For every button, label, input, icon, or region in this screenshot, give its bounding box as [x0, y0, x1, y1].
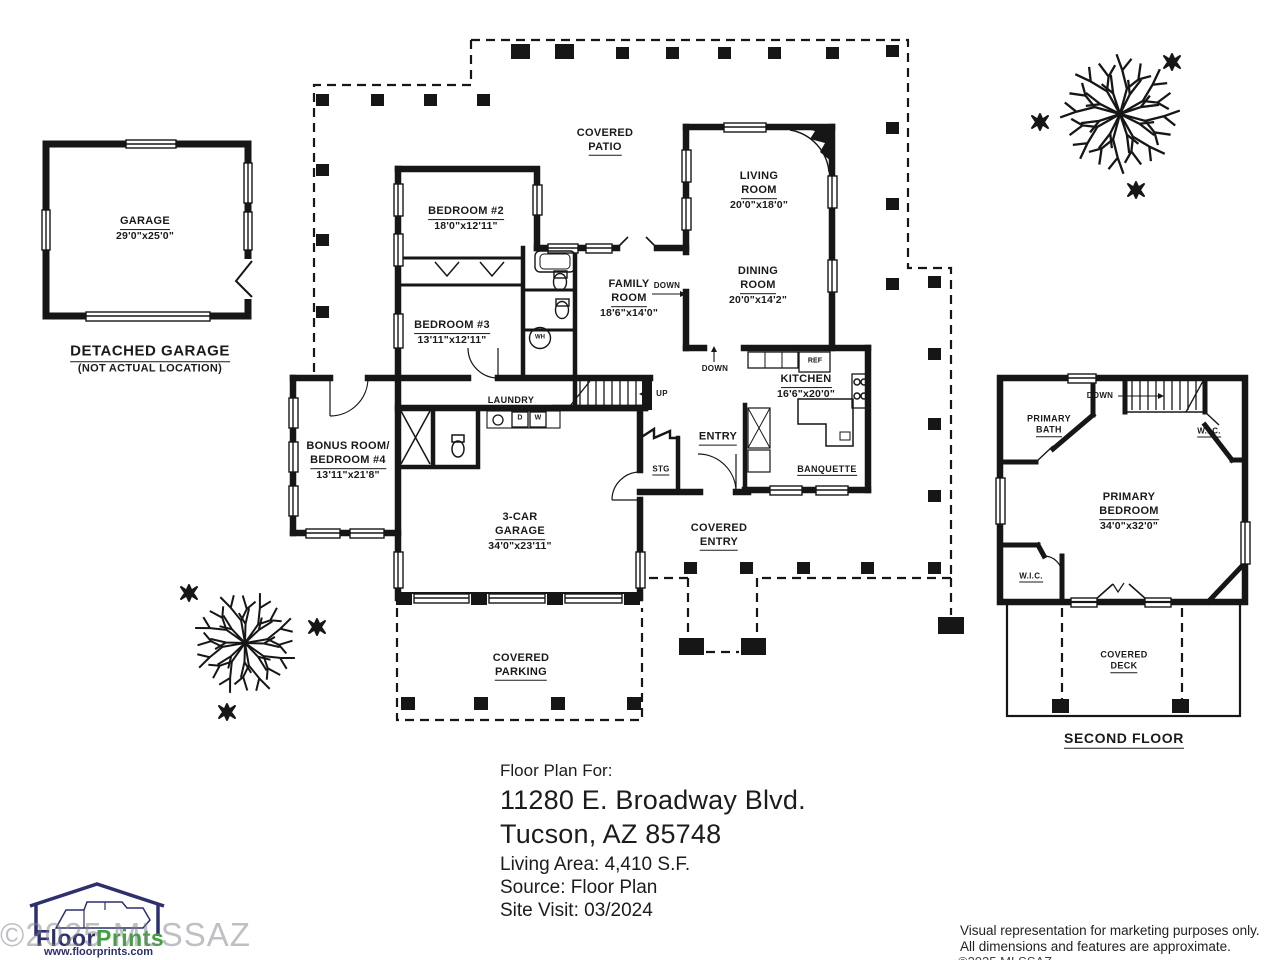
up-label: UP — [656, 389, 668, 399]
second-floor-caption: SECOND FLOOR — [1064, 730, 1184, 749]
bedroom3-label: BEDROOM #3 13'11"x12'11" — [414, 319, 490, 347]
door-swings — [330, 237, 736, 500]
disclaimer-line2: All dimensions and features are approxim… — [960, 939, 1260, 955]
garage-doors — [396, 592, 640, 605]
site-visit: Site Visit: 03/2024 — [500, 901, 806, 920]
tree-top-right — [1056, 50, 1184, 178]
bonus-room-label: BONUS ROOM/ BEDROOM #4 13'11"x21'8" — [306, 440, 389, 482]
entry-label: ENTRY — [699, 431, 737, 446]
detached-garage-room-label: GARAGE 29'0"x25'0" — [116, 215, 174, 243]
washer-label: W — [535, 415, 542, 424]
down-label-second-floor: DOWN — [1087, 391, 1114, 401]
bushes — [181, 54, 1180, 720]
source: Source: Floor Plan — [500, 878, 806, 897]
covered-deck-label: COVERED DECK — [1100, 649, 1147, 673]
living-room-label: LIVING ROOM 20'0"x18'0" — [730, 170, 788, 212]
fireplace — [790, 127, 832, 172]
primary-bath-label: PRIMARY BATH — [1027, 413, 1071, 437]
down-label-2: DOWN — [702, 364, 729, 374]
detached-garage-caption: DETACHED GARAGE (NOT ACTUAL LOCATION) — [70, 342, 230, 376]
banquette-label: BANQUETTE — [797, 464, 857, 476]
refrigerator-label: REF — [808, 358, 822, 367]
clipped-copyright-line: ©2025 MLSSAZ — [958, 954, 1052, 960]
wic-left-label: W.I.C. — [1019, 572, 1043, 583]
main-floor-inner-walls — [398, 248, 745, 492]
address-line1: 11280 E. Broadway Blvd. — [500, 787, 806, 814]
property-info-block: Floor Plan For: 11280 E. Broadway Blvd. … — [500, 762, 806, 924]
mls-watermark: ©2025 MLSSAZ — [0, 916, 251, 954]
disclaimer-line1: Visual representation for marketing purp… — [960, 923, 1260, 939]
covered-patio-label: COVERED PATIO — [577, 127, 634, 156]
covered-entry-label: COVERED ENTRY — [691, 522, 748, 551]
down-label-1: DOWN — [654, 281, 681, 291]
disclaimer-block: Visual representation for marketing purp… — [960, 923, 1260, 955]
laundry-fixtures — [487, 411, 560, 428]
info-heading: Floor Plan For: — [500, 762, 806, 779]
wic-right-label: W.I.C. — [1197, 427, 1221, 438]
floorplan-page: COVERED PATIO BEDROOM #2 18'0"x12'11" BE… — [0, 0, 1280, 960]
covered-parking-label: COVERED PARKING — [493, 652, 550, 681]
primary-bedroom-label: PRIMARY BEDROOM 34'0"x32'0" — [1099, 491, 1159, 533]
family-room-label: FAMILY ROOM 18'6"x14'0" — [600, 278, 658, 320]
bedroom2-label: BEDROOM #2 18'0"x12'11" — [428, 205, 504, 233]
dining-room-label: DINING ROOM 20'0"x14'2" — [729, 265, 787, 307]
kitchen-label: KITCHEN 16'6"x20'0" — [777, 373, 835, 401]
water-heater-label: WH — [535, 334, 545, 342]
storage-label: STG — [652, 465, 669, 476]
kitchen-fixtures — [748, 352, 868, 472]
second-floor-walls — [1000, 378, 1245, 602]
living-area: Living Area: 4,410 S.F. — [500, 855, 806, 874]
three-car-garage-label: 3-CAR GARAGE 34'0"x23'11" — [488, 511, 552, 553]
tree-bottom-left — [173, 571, 316, 714]
laundry-label: LAUNDRY — [488, 395, 534, 407]
address-line2: Tucson, AZ 85748 — [500, 821, 806, 848]
dryer-label: D — [517, 415, 522, 424]
